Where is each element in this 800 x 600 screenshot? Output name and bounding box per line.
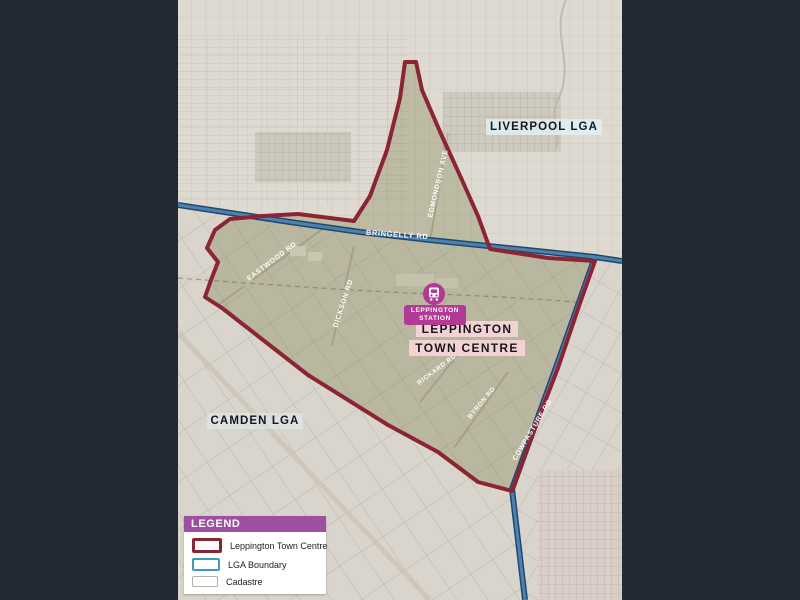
town-centre-swatch-icon [192, 538, 222, 553]
legend-item-cadastre: Cadastre [192, 576, 318, 587]
station-marker [423, 283, 445, 305]
screenshot-root: { "canvas": { "background": "#232933" },… [0, 0, 800, 600]
legend-body: Leppington Town Centre LGA Boundary Cada… [184, 532, 326, 594]
camden-lga-label: CAMDEN LGA [188, 413, 322, 429]
legend-title: LEGEND [184, 516, 326, 532]
station-badge-line2: STATION [406, 315, 464, 323]
lga-boundary-swatch-icon [192, 558, 220, 571]
legend-item-label: Cadastre [226, 577, 263, 587]
cadastre-swatch-icon [192, 576, 218, 587]
aerial-basemap: BRINGELLY RD EASTWOOD RD DICKSON RD EDMO… [178, 0, 622, 600]
legend-item-label: LGA Boundary [228, 560, 287, 570]
map-image: BRINGELLY RD EASTWOOD RD DICKSON RD EDMO… [178, 0, 622, 600]
liverpool-lga-label: LIVERPOOL LGA [468, 119, 620, 135]
liverpool-lga-text: LIVERPOOL LGA [486, 119, 602, 135]
legend: LEGEND Leppington Town Centre LGA Bounda… [184, 516, 326, 594]
legend-item-lga-boundary: LGA Boundary [192, 558, 318, 571]
camden-lga-text: CAMDEN LGA [207, 413, 304, 429]
town-centre-label-line2: TOWN CENTRE [409, 340, 524, 356]
station-badge-line1: LEPPINGTON [406, 307, 464, 315]
station-badge: LEPPINGTON STATION [404, 305, 466, 325]
legend-item-label: Leppington Town Centre [230, 541, 327, 551]
legend-item-town-centre: Leppington Town Centre [192, 538, 318, 553]
town-centre-label: LEPPINGTON TOWN CENTRE [400, 321, 534, 356]
